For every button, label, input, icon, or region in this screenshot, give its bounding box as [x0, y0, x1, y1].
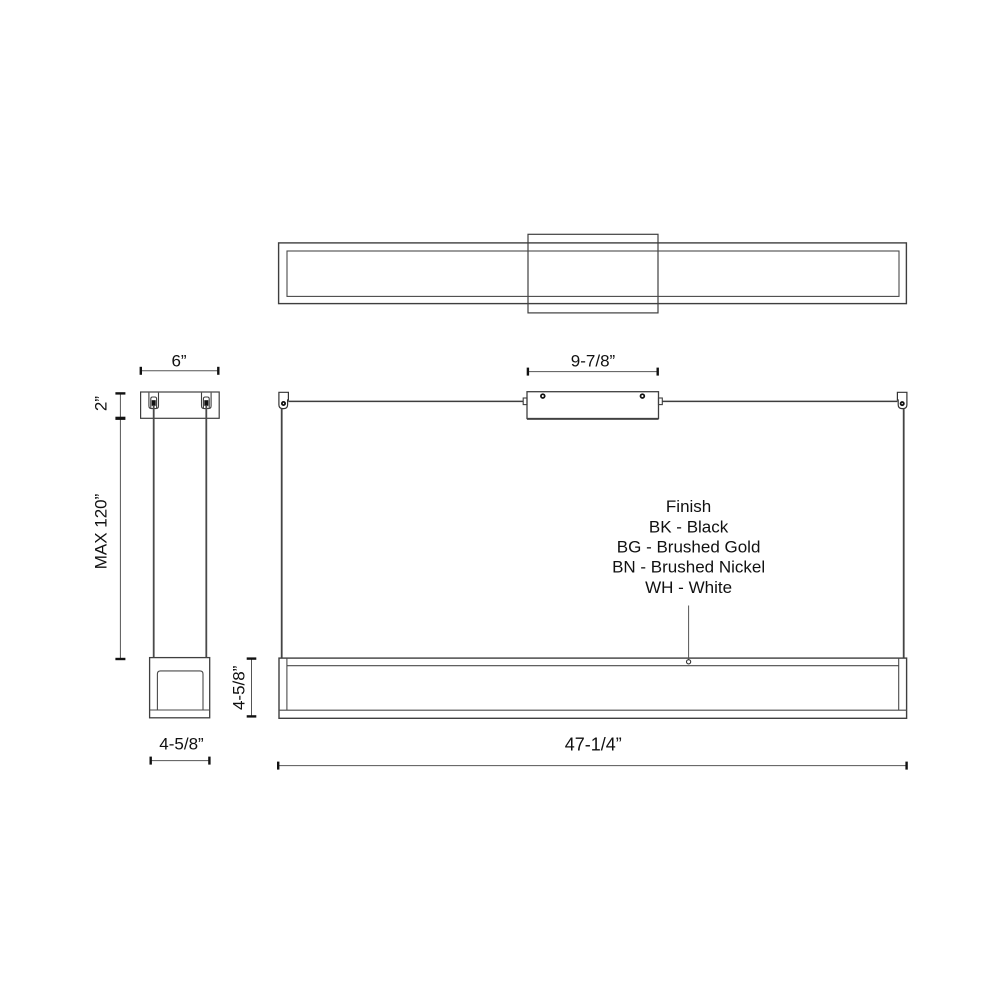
svg-text:Finish: Finish — [666, 497, 711, 516]
svg-text:WH - White: WH - White — [645, 578, 732, 597]
svg-text:2”: 2” — [92, 396, 111, 411]
svg-text:4-5/8”: 4-5/8” — [230, 665, 249, 710]
svg-text:MAX 120”: MAX 120” — [92, 493, 111, 569]
svg-text:4-5/8”: 4-5/8” — [159, 735, 204, 754]
svg-text:BG - Brushed Gold: BG - Brushed Gold — [617, 538, 761, 557]
svg-text:9-7/8”: 9-7/8” — [571, 351, 616, 370]
svg-text:47-1/4”: 47-1/4” — [565, 735, 622, 755]
svg-text:6”: 6” — [171, 351, 186, 370]
svg-text:BN - Brushed Nickel: BN - Brushed Nickel — [612, 558, 765, 577]
svg-text:BK - Black: BK - Black — [649, 517, 729, 536]
